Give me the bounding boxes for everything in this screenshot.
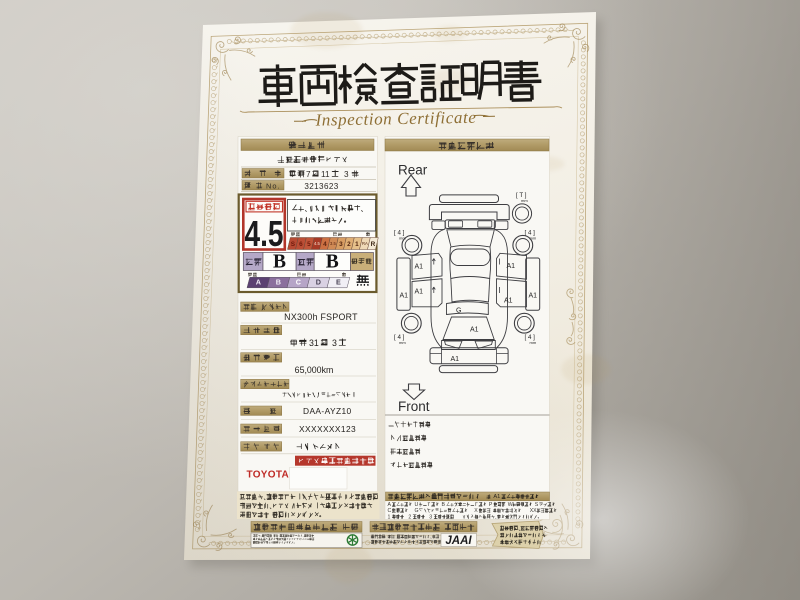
svg-text:A1: A1 [507, 263, 516, 270]
svg-text:mm: mm [521, 198, 528, 203]
svg-text:A1: A1 [400, 293, 409, 300]
svg-text:B: B [273, 252, 286, 273]
svg-text:A1: A1 [529, 293, 538, 300]
svg-text:TOYOTA: TOYOTA [247, 470, 290, 481]
svg-text:C: C [296, 278, 301, 287]
svg-text:11: 11 [321, 170, 330, 179]
svg-text:G: G [415, 508, 419, 514]
svg-text:3: 3 [344, 170, 349, 179]
svg-text:A1: A1 [451, 356, 460, 363]
svg-text:W: W [508, 502, 513, 508]
svg-text:B: B [276, 278, 281, 287]
svg-text:3: 3 [332, 338, 337, 348]
svg-text:1: 1 [388, 514, 391, 520]
svg-text:mm: mm [530, 236, 537, 241]
svg-text:B: B [326, 252, 339, 273]
svg-text:D: D [316, 278, 321, 287]
svg-text:mm: mm [530, 340, 537, 345]
svg-text:7: 7 [306, 170, 311, 179]
svg-text:R: R [371, 241, 376, 248]
svg-text:XX: XX [530, 508, 537, 514]
svg-text:2: 2 [408, 514, 411, 520]
svg-text:1: 1 [355, 241, 359, 248]
svg-text:U: U [415, 502, 419, 508]
svg-text:31: 31 [309, 338, 319, 348]
svg-text:Inspection Certificate: Inspection Certificate [314, 108, 476, 130]
svg-text:5: 5 [307, 241, 311, 248]
svg-text:U-Car: U-Car [302, 537, 310, 541]
svg-text:6: 6 [299, 241, 303, 248]
svg-text:E: E [336, 278, 341, 287]
svg-text:A: A [256, 278, 261, 287]
svg-text:S: S [291, 241, 296, 248]
svg-text:JAAI: JAAI [445, 535, 472, 547]
svg-text:mm: mm [399, 340, 406, 345]
svg-text:No.: No. [266, 182, 281, 191]
svg-text:2: 2 [347, 241, 351, 248]
svg-text:mm: mm [399, 236, 406, 241]
svg-text:S: S [535, 502, 539, 508]
svg-text:A: A [388, 502, 392, 508]
svg-text:A1: A1 [470, 327, 479, 334]
svg-text:3.5: 3.5 [330, 241, 336, 246]
svg-text:G: G [456, 308, 461, 315]
svg-text:RA: RA [362, 241, 368, 246]
svg-text:Rear: Rear [398, 163, 428, 178]
svg-text:3213623: 3213623 [304, 182, 338, 191]
svg-text:XXXXXXX123: XXXXXXX123 [299, 424, 356, 434]
svg-text:3: 3 [339, 241, 343, 248]
svg-text:A1: A1 [415, 264, 424, 271]
svg-text:X: X [474, 508, 478, 514]
svg-text:4.5: 4.5 [245, 213, 284, 254]
svg-text:C: C [388, 508, 392, 514]
svg-text:P: P [489, 502, 493, 508]
svg-text:NX300h FSPORT: NX300h FSPORT [284, 312, 358, 322]
svg-text:Front: Front [398, 399, 430, 414]
svg-text:A1: A1 [415, 289, 424, 296]
svg-text:65,000km: 65,000km [295, 365, 334, 375]
svg-text:DAA-AYZ10: DAA-AYZ10 [303, 406, 352, 416]
svg-text:A1: A1 [493, 494, 500, 500]
svg-text:B: B [442, 502, 446, 508]
svg-text:4.5: 4.5 [314, 241, 320, 246]
svg-text:A1: A1 [504, 298, 513, 305]
svg-text:3: 3 [429, 514, 432, 520]
svg-text:4: 4 [323, 241, 327, 248]
